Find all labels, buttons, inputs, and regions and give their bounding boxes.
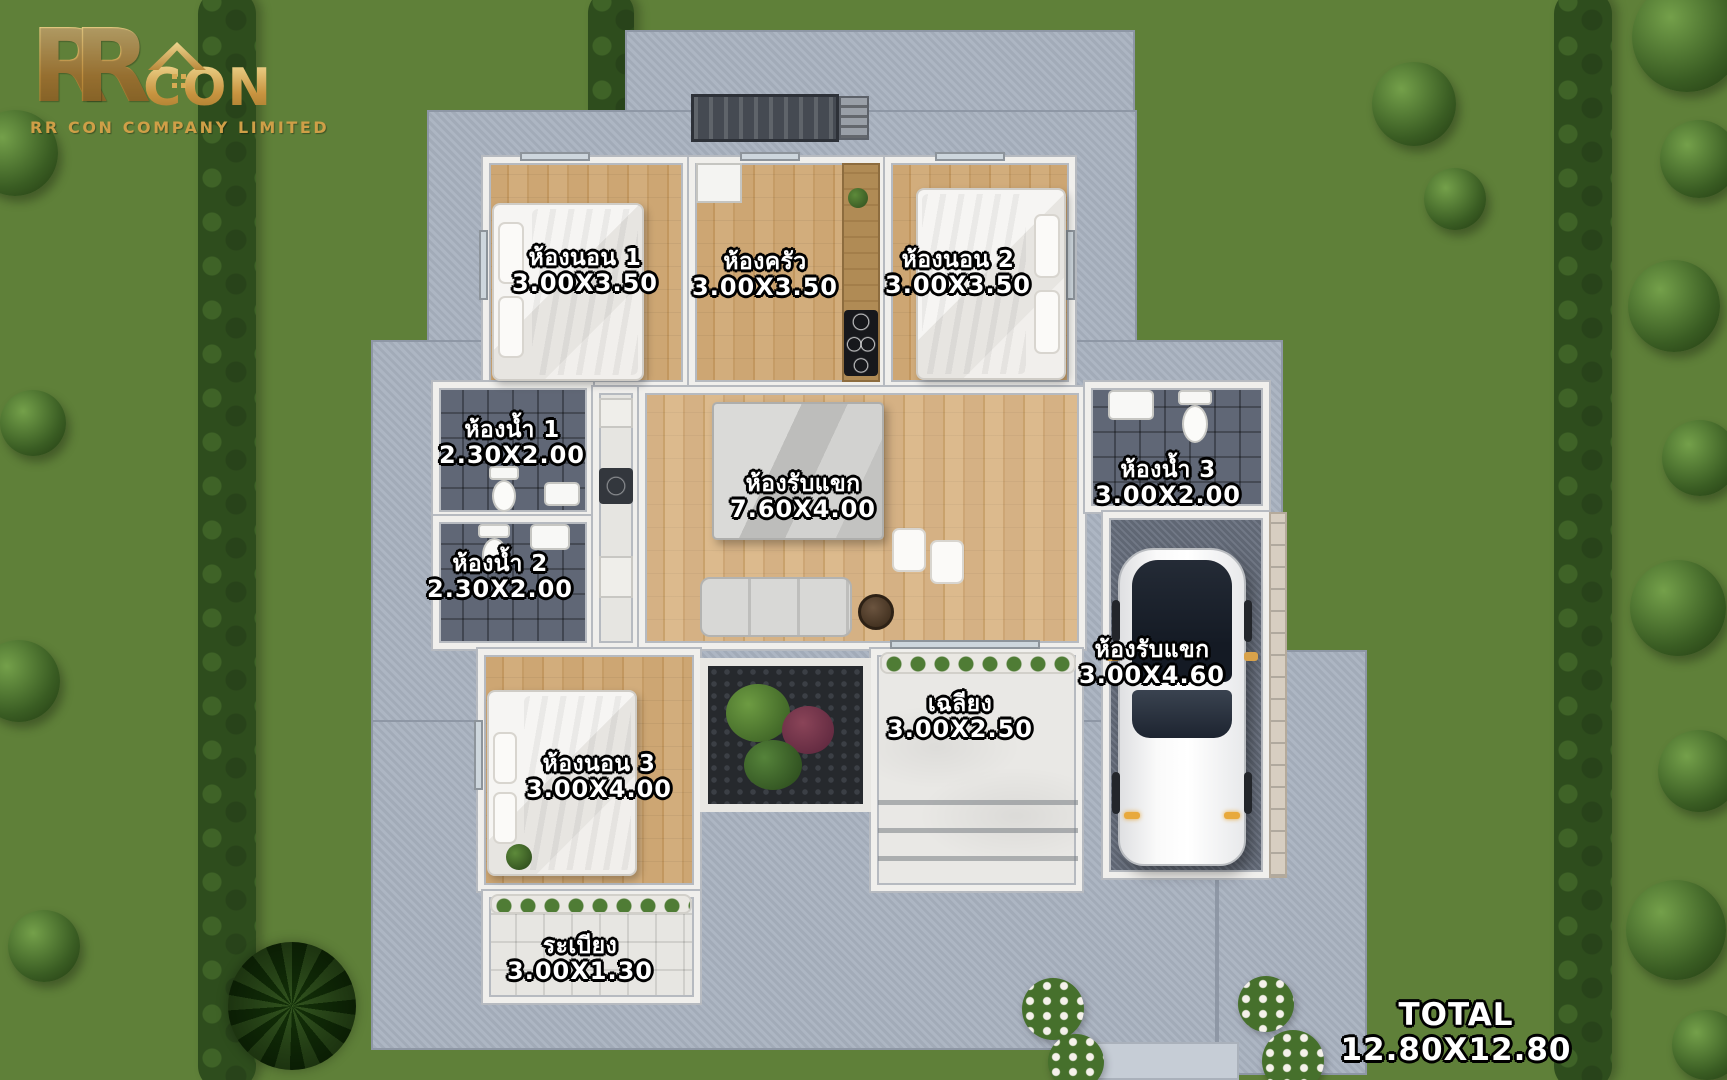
room-size: 3.00X3.50: [885, 273, 1031, 299]
logo: R R CON RR CON COMPANY LIMITED: [30, 12, 329, 137]
room-label-porch: เฉลียง 3.00X2.50: [887, 692, 1033, 743]
hedge-right: [1554, 0, 1612, 1080]
tree: [1660, 120, 1727, 198]
pillow: [1034, 290, 1060, 354]
hedge-left: [198, 0, 256, 1080]
room-name: ห้องรับแขก: [730, 472, 876, 497]
pillow: [493, 732, 517, 784]
roof-window-dots-icon: [172, 74, 177, 79]
planter-row: [490, 894, 692, 914]
fridge: [696, 163, 742, 203]
toilet: [492, 480, 516, 512]
cushion: [892, 528, 926, 572]
car-mirror: [1244, 652, 1258, 661]
flower-bush: [1238, 976, 1294, 1032]
tree: [1628, 260, 1720, 352]
tree: [1662, 420, 1727, 496]
car-wheel: [1244, 772, 1252, 814]
window: [935, 152, 1005, 161]
counter-plant: [848, 188, 868, 208]
washing-machine: [599, 468, 633, 504]
cabinet: [599, 398, 633, 428]
toilet: [1182, 405, 1208, 443]
window: [520, 152, 590, 161]
tree: [1630, 560, 1726, 656]
room-size: 3.00X2.50: [887, 717, 1033, 743]
window: [479, 230, 488, 300]
sink: [544, 482, 580, 506]
room-label-bedroom-3: ห้องนอน 3 3.00X4.00: [526, 752, 672, 803]
sofa: [700, 577, 852, 637]
room-name: ห้องนอน 2: [885, 248, 1031, 273]
toilet: [1178, 390, 1212, 405]
room-size: 3.00X4.00: [526, 777, 672, 803]
logo-mark: R R CON: [30, 12, 329, 114]
tree: [0, 640, 60, 722]
room-label-bedroom-1: ห้องนอน 1 3.00X3.50: [512, 246, 658, 297]
palm-tree: [228, 942, 356, 1070]
tree: [1424, 168, 1486, 230]
tree: [1372, 62, 1456, 146]
room-name: เฉลียง: [887, 692, 1033, 717]
room-size: 7.60X4.00: [730, 497, 876, 523]
room-label-bedroom-2: ห้องนอน 2 3.00X3.50: [885, 248, 1031, 299]
cushion: [930, 540, 964, 584]
stove-cooktop: [844, 310, 878, 376]
car-headlight: [1124, 812, 1140, 819]
room-size: 3.00X3.50: [692, 275, 838, 301]
room-size: 2.30X2.00: [439, 443, 585, 469]
roof-vent: [691, 94, 839, 142]
window: [740, 152, 800, 161]
room-name: ห้องน้ำ 3: [1095, 458, 1241, 483]
tree: [8, 910, 80, 982]
room-label-living: ห้องรับแขก 7.60X4.00: [730, 472, 876, 523]
room-name: ระเบียง: [507, 934, 653, 959]
logo-letter-r2: R: [73, 20, 152, 114]
window: [1066, 230, 1075, 300]
potted-plant: [506, 844, 532, 870]
pillow: [1034, 214, 1060, 278]
car-wheel: [1244, 600, 1252, 642]
room-name: ห้องน้ำ 1: [439, 418, 585, 443]
total-title: TOTAL: [1340, 998, 1571, 1033]
tree: [0, 390, 66, 456]
flower-bush: [1022, 978, 1084, 1040]
roof-ladder: [839, 96, 869, 140]
sink: [530, 524, 570, 550]
tree: [1658, 730, 1727, 812]
tree: [1672, 1010, 1727, 1080]
room-size: 2.30X2.00: [427, 577, 573, 603]
floor-plan-render: ห้องนอน 1 3.00X3.50 ห้องครัว 3.00X3.50 ห…: [0, 0, 1727, 1080]
sliding-door: [890, 640, 1040, 649]
toilet: [478, 524, 510, 538]
room-size: 3.00X4.60: [1079, 663, 1225, 689]
garden-plant: [744, 740, 802, 790]
room-name: ห้องรับแขก: [1079, 638, 1225, 663]
room-name: ห้องนอน 3: [526, 752, 672, 777]
porch-step: [878, 800, 1078, 805]
room-name: ห้องนอน 1: [512, 246, 658, 271]
porch-step: [878, 856, 1078, 861]
car-windshield: [1132, 690, 1232, 738]
room-size: 3.00X2.00: [1095, 483, 1241, 509]
room-size: 3.00X1.30: [507, 959, 653, 985]
room-name: ห้องน้ำ 2: [427, 552, 573, 577]
room-label-terrace: ระเบียง 3.00X1.30: [507, 934, 653, 985]
cabinet: [599, 556, 633, 598]
room-label-bathroom-2: ห้องน้ำ 2 2.30X2.00: [427, 552, 573, 603]
porch-step: [878, 828, 1078, 833]
room-size: 3.00X3.50: [512, 271, 658, 297]
total-label: TOTAL 12.80X12.80: [1340, 998, 1571, 1067]
logo-con-text: CON: [143, 62, 272, 114]
carport-stone-wall: [1269, 512, 1287, 878]
room-name: ห้องครัว: [692, 250, 838, 275]
room-porch: [871, 649, 1082, 891]
total-size: 12.80X12.80: [1340, 1033, 1571, 1068]
pillow: [498, 296, 524, 358]
pillow: [493, 792, 517, 844]
window: [474, 720, 483, 790]
sink: [1108, 390, 1154, 420]
car-wheel: [1112, 772, 1120, 814]
round-side-table: [858, 594, 894, 630]
room-label-bathroom-1: ห้องน้ำ 1 2.30X2.00: [439, 418, 585, 469]
garden-plant: [726, 684, 790, 742]
car-headlight: [1224, 812, 1240, 819]
room-label-kitchen: ห้องครัว 3.00X3.50: [692, 250, 838, 301]
planter-row: [880, 652, 1076, 674]
tree: [1626, 880, 1726, 980]
tree: [1632, 0, 1727, 92]
room-label-carport: ห้องรับแขก 3.00X4.60: [1079, 638, 1225, 689]
car-wheel: [1112, 600, 1120, 642]
room-label-bathroom-3: ห้องน้ำ 3 3.00X2.00: [1095, 458, 1241, 509]
